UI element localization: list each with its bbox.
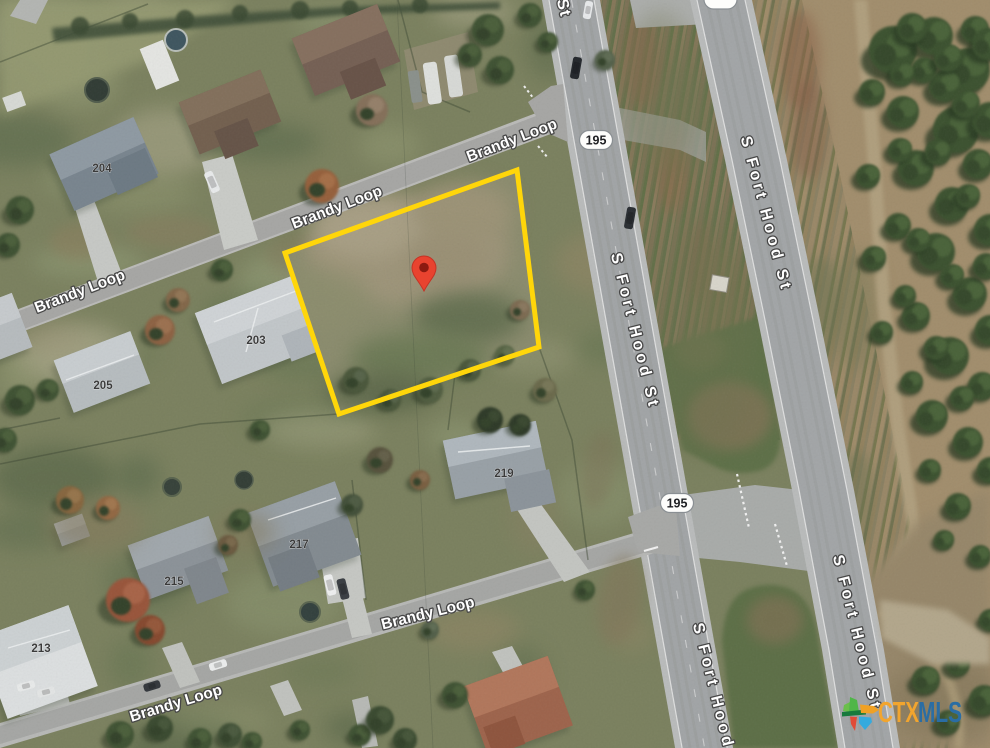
svg-text:215: 215	[164, 576, 184, 588]
svg-text:CTX: CTX	[878, 697, 919, 729]
svg-text:MLS: MLS	[918, 697, 962, 729]
svg-text:219: 219	[494, 468, 513, 480]
svg-text:203: 203	[246, 335, 265, 347]
svg-text:213: 213	[31, 643, 50, 655]
svg-text:195: 195	[586, 134, 607, 148]
svg-text:195: 195	[667, 497, 688, 511]
svg-text:205: 205	[93, 380, 113, 392]
svg-text:217: 217	[289, 539, 308, 551]
svg-text:204: 204	[92, 163, 112, 175]
